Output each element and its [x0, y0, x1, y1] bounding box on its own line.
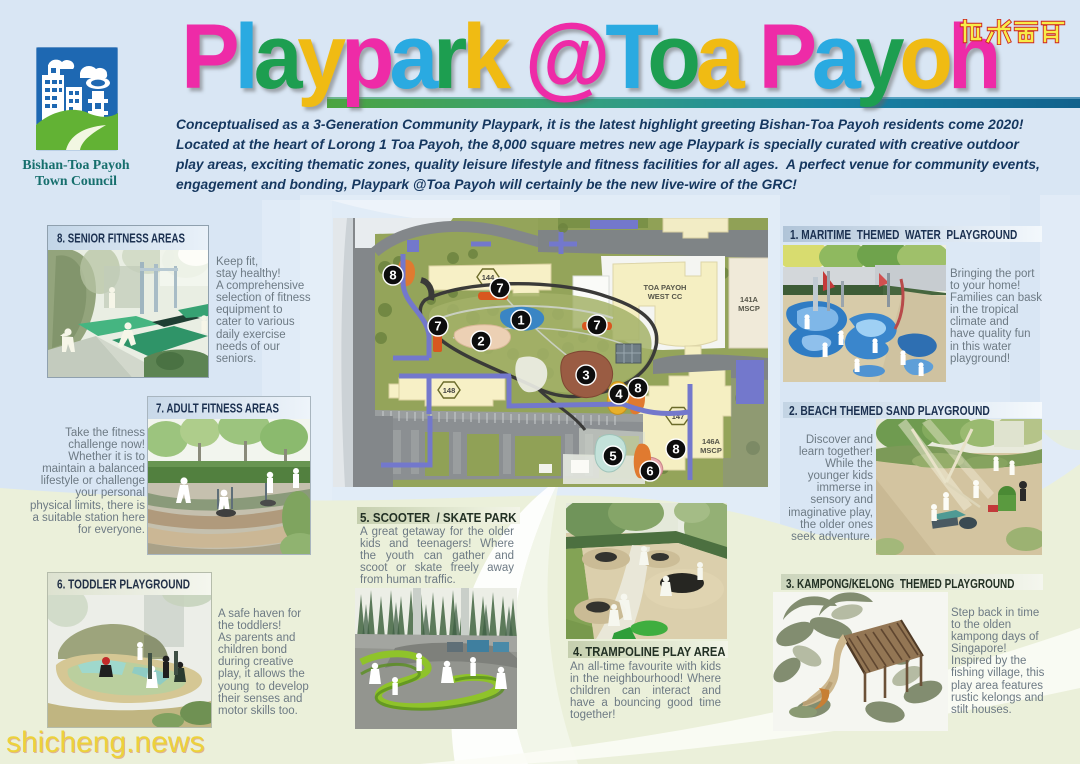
svg-text:8: 8: [634, 381, 641, 396]
svg-text:2: 2: [477, 334, 484, 349]
svg-text:1: 1: [517, 313, 524, 328]
svg-text:MSCP: MSCP: [700, 446, 722, 455]
svg-text:141A: 141A: [740, 295, 759, 304]
svg-text:WEST CC: WEST CC: [648, 292, 683, 301]
svg-text:146A: 146A: [702, 437, 721, 446]
svg-text:8: 8: [389, 268, 396, 283]
svg-text:7: 7: [593, 318, 600, 333]
svg-text:7. ADULT FITNESS AREAS: 7. ADULT FITNESS AREAS: [156, 401, 279, 416]
svg-text:6: 6: [646, 464, 653, 479]
svg-text:6. TODDLER PLAYGROUND: 6. TODDLER PLAYGROUND: [57, 577, 190, 592]
svg-text:148: 148: [443, 386, 456, 395]
svg-text:7: 7: [434, 319, 441, 334]
svg-text:8. SENIOR FITNESS AREAS: 8. SENIOR FITNESS AREAS: [57, 231, 185, 246]
svg-text:7: 7: [496, 281, 503, 296]
svg-text:MSCP: MSCP: [738, 304, 760, 313]
svg-text:4: 4: [615, 387, 623, 402]
svg-text:TOA PAYOH: TOA PAYOH: [644, 283, 687, 292]
svg-text:5: 5: [609, 449, 616, 464]
svg-text:8: 8: [672, 442, 679, 457]
svg-text:3: 3: [582, 368, 589, 383]
